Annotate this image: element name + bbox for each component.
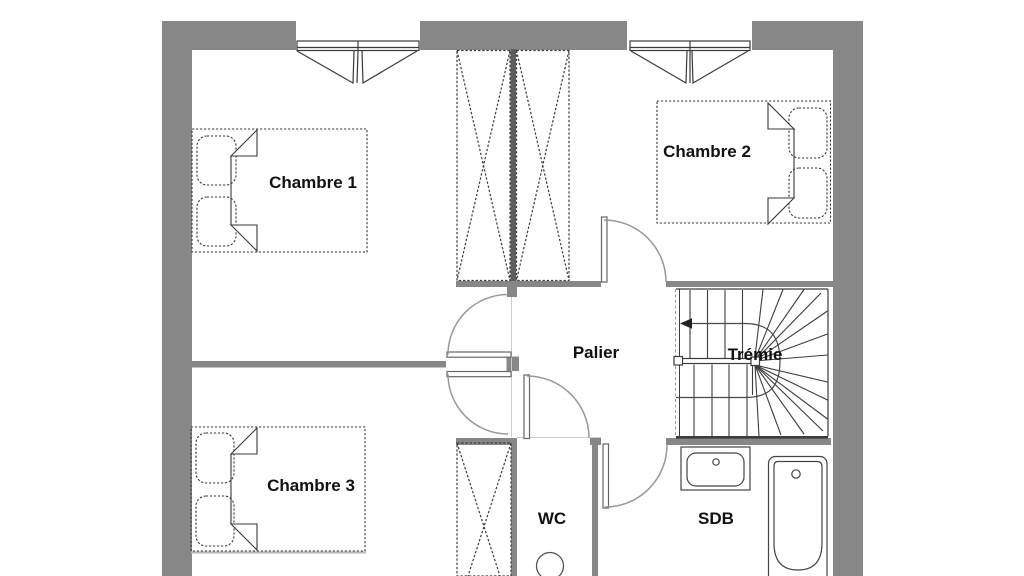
svg-text:Trémie: Trémie <box>728 345 783 364</box>
svg-text:SDB: SDB <box>698 509 734 528</box>
svg-text:Palier: Palier <box>573 343 620 362</box>
svg-text:Chambre 2: Chambre 2 <box>663 142 751 161</box>
svg-text:WC: WC <box>538 509 566 528</box>
svg-text:Chambre 1: Chambre 1 <box>269 173 357 192</box>
svg-text:Chambre 3: Chambre 3 <box>267 476 355 495</box>
